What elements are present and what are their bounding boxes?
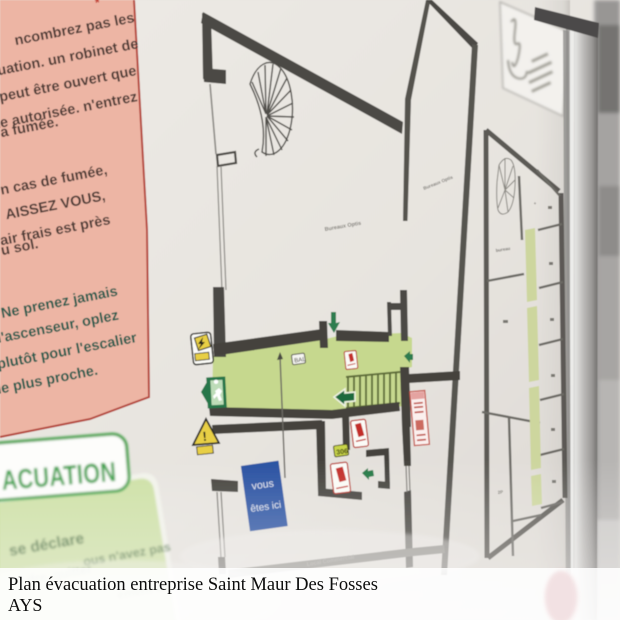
svg-text:Plan évacuation entreprise Sai: Plan évacuation entreprise Saint Maur De… bbox=[8, 575, 378, 595]
svg-text:AYS: AYS bbox=[8, 595, 42, 615]
